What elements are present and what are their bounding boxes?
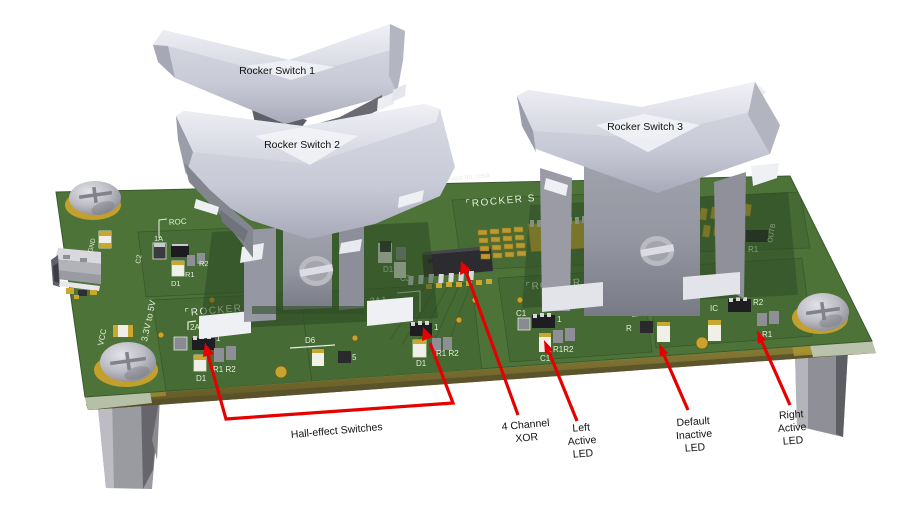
- svg-text:R1 R2: R1 R2: [436, 349, 459, 358]
- svg-text:R1R2: R1R2: [553, 345, 574, 354]
- svg-text:Left: Left: [572, 421, 590, 434]
- svg-text:Inactive: Inactive: [676, 428, 713, 443]
- svg-text:LED: LED: [782, 434, 804, 447]
- svg-text:XOR: XOR: [515, 431, 539, 445]
- svg-text:Default: Default: [676, 415, 710, 429]
- svg-text:LED: LED: [572, 447, 594, 460]
- svg-text:1: 1: [557, 315, 562, 324]
- svg-text:D6: D6: [305, 336, 316, 345]
- svg-text:1: 1: [434, 323, 439, 332]
- svg-text:Right: Right: [779, 408, 804, 422]
- svg-text:5: 5: [352, 353, 357, 362]
- svg-text:LED: LED: [684, 441, 706, 454]
- svg-text:ROC: ROC: [169, 217, 188, 227]
- svg-text:2A: 2A: [190, 323, 200, 332]
- svg-text:Active: Active: [777, 421, 807, 435]
- svg-text:Rocker Switch 1: Rocker Switch 1: [239, 65, 315, 77]
- svg-text:C1: C1: [516, 309, 527, 318]
- svg-text:R1: R1: [185, 270, 195, 279]
- svg-text:D1: D1: [171, 279, 181, 288]
- svg-text:R: R: [626, 324, 632, 333]
- svg-text:R1 R2: R1 R2: [213, 365, 236, 374]
- svg-text:D1: D1: [416, 359, 427, 368]
- svg-text:IC: IC: [710, 304, 718, 313]
- svg-text:D1: D1: [196, 374, 207, 383]
- svg-text:Rocker Switch 2: Rocker Switch 2: [264, 139, 340, 151]
- svg-text:Rocker Switch 3: Rocker Switch 3: [607, 121, 683, 133]
- svg-text:R2: R2: [753, 298, 764, 307]
- svg-text:R2: R2: [199, 259, 209, 268]
- svg-text:Active: Active: [567, 434, 597, 448]
